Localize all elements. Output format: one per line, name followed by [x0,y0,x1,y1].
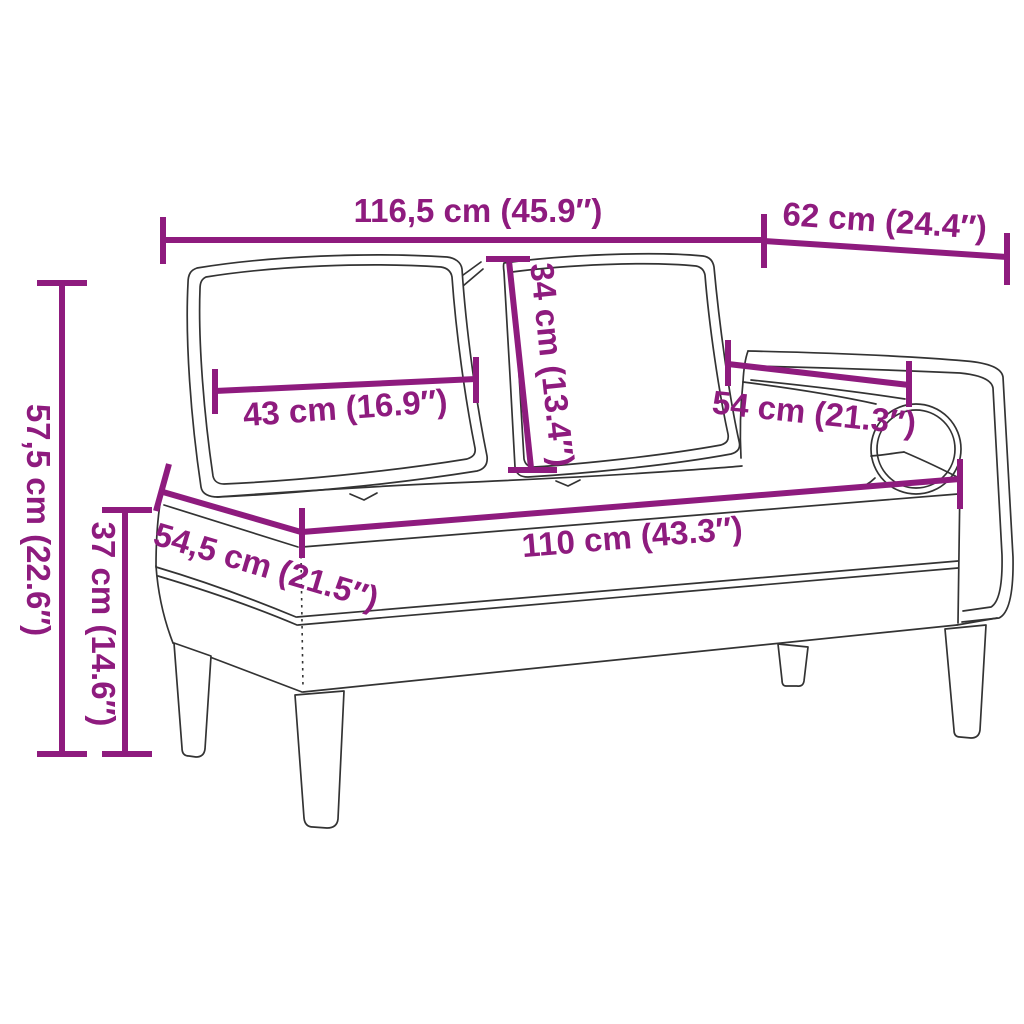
left-back-cushion [187,255,487,497]
legs [174,625,986,828]
base-bottom-front [303,625,957,692]
front-left-leg [295,691,344,828]
left-back-cushion-outline [187,255,487,497]
product-dimension-diagram: 116,5 cm (45.9″) 62 cm (24.4″) 57,5 cm (… [0,0,1024,1024]
diagram-canvas: 116,5 cm (45.9″) 62 cm (24.4″) 57,5 cm (… [0,0,1024,1024]
seat-length-label: 110 cm (43.3″) [520,509,744,564]
deck-wrinkle [556,480,580,486]
deck-wrinkle [350,493,377,500]
rear-right-leg [945,625,986,738]
seat-height-label: 37 cm (14.6″) [85,522,122,727]
band-seam-front-a [297,561,958,617]
dimension-seat-height: 37 cm (14.6″) [85,510,152,754]
band-seam-front-b [298,568,958,625]
dimension-overall-height: 57,5 cm (22.6″) [20,283,87,754]
rear-left-leg [174,643,211,757]
rear-middle-leg [778,644,808,686]
overall-height-label: 57,5 cm (22.6″) [20,404,57,636]
dimension-arm-section-depth: 62 cm (24.4″) [764,195,1007,285]
overall-width-label: 116,5 cm (45.9″) [354,192,603,229]
dimension-tick [156,464,169,511]
arm-section-depth-label: 62 cm (24.4″) [781,195,988,246]
